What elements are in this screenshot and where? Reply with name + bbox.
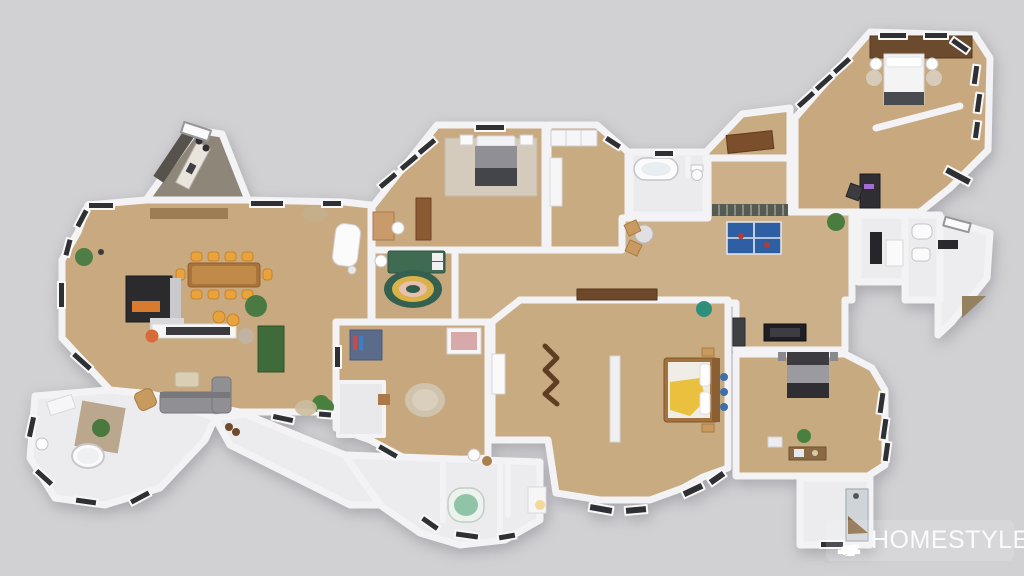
homestyler-shutter-icon [834, 526, 864, 556]
dining-chair [208, 252, 219, 261]
exercise-ball [696, 301, 712, 317]
vanity-stool [392, 222, 404, 234]
dining-chair [208, 290, 219, 299]
ball-lamp [375, 255, 387, 267]
window [588, 503, 613, 515]
window [318, 410, 333, 418]
paddle [764, 242, 770, 248]
teen-bed-pillow [432, 262, 443, 270]
sofa-back [160, 392, 230, 398]
dresser [492, 354, 505, 394]
area-rug [295, 400, 317, 416]
fireplace-panel [170, 278, 181, 320]
treadmill-deck [770, 328, 800, 337]
piano-bench [348, 266, 356, 274]
headboard [712, 358, 720, 422]
bench-items [812, 450, 818, 456]
nightstand [520, 135, 533, 145]
computer-desk [860, 174, 880, 208]
sideboard [577, 289, 657, 300]
ball-lamp [870, 58, 882, 70]
dining-chair [191, 290, 202, 299]
nightstand [702, 348, 714, 356]
monitor [864, 184, 874, 189]
tall-plant [75, 248, 93, 266]
window [971, 65, 981, 86]
tub-basin [77, 448, 99, 464]
grand-piano [332, 223, 362, 268]
ceiling-light [302, 206, 328, 222]
fluffy-rug-center [412, 389, 438, 411]
ball-lamp [926, 58, 938, 70]
round-rug [866, 70, 882, 86]
window [654, 150, 674, 157]
bed [787, 365, 829, 383]
homestyler-watermark: HOMESTYLER [826, 520, 1014, 561]
kids-chair [378, 394, 390, 405]
ladder-shelf [416, 198, 431, 240]
floorplan-svg [0, 0, 1024, 576]
bed-foot [787, 383, 829, 398]
toilet [36, 438, 48, 450]
window [625, 505, 648, 515]
bar-stool [213, 311, 225, 323]
pouf [146, 330, 159, 343]
side-table [778, 352, 786, 361]
wall-plant [827, 213, 845, 231]
wardrobe [551, 130, 597, 146]
bush-plant [245, 295, 267, 317]
bed [475, 146, 517, 168]
wall-plate [720, 403, 728, 411]
toilet [692, 170, 703, 181]
sink [912, 248, 930, 261]
bed-fold [884, 92, 924, 105]
staircase [712, 204, 788, 216]
bed-pillow [700, 392, 710, 414]
window [924, 32, 948, 39]
bench-items [794, 449, 804, 457]
window [88, 202, 114, 209]
window [322, 200, 342, 207]
floorplan-render: HOMESTYLER [0, 0, 1024, 576]
kitchen-appliance [203, 145, 210, 152]
round-rug-center [406, 285, 420, 293]
paddle [738, 233, 744, 239]
window [475, 124, 505, 131]
bed-pillows [477, 136, 515, 146]
shower-head [853, 493, 859, 499]
bed-pillows [886, 57, 922, 67]
dining-chair [242, 252, 253, 261]
potted-plant [92, 419, 110, 437]
dining-chair [263, 269, 272, 280]
planter-box [258, 326, 284, 372]
basket [482, 456, 492, 466]
fireplace-tv-unit [126, 276, 172, 322]
dining-chair [225, 290, 236, 299]
doormat [150, 208, 228, 219]
window [334, 346, 341, 368]
corner-rug [962, 296, 986, 318]
dining-chair [191, 252, 202, 261]
kids-closet [338, 382, 384, 436]
green-bathtub-basin [454, 494, 478, 516]
toilet [468, 449, 480, 461]
round-rug [926, 70, 942, 86]
crib-mattress [451, 332, 477, 350]
wc-room-c-floor [938, 218, 990, 335]
window [974, 93, 984, 114]
ceiling-light [238, 328, 254, 344]
toilet [912, 224, 932, 239]
fireplace-fire [132, 301, 160, 312]
teen-bed-pillow [432, 253, 443, 261]
vanity-desk [373, 212, 394, 240]
wall-plate [720, 373, 728, 381]
window [882, 442, 892, 463]
room-divider [610, 356, 620, 442]
toy [353, 336, 357, 350]
window [879, 32, 907, 39]
firewood-logs [232, 428, 240, 436]
nightstand [460, 135, 473, 145]
toy [359, 336, 363, 350]
window [58, 282, 65, 308]
coffee-table [175, 372, 199, 387]
wall-plate [720, 388, 728, 396]
side-table [768, 437, 782, 447]
closet-counter [550, 158, 562, 206]
bathroom-vanity [870, 232, 882, 264]
window [972, 121, 981, 140]
bar-counter-top [166, 327, 230, 335]
warm-light [535, 500, 545, 510]
side-table [830, 352, 838, 361]
exercise-bike [733, 318, 745, 346]
bar-stool [227, 314, 239, 326]
bed-headboard [787, 352, 829, 365]
firewood-logs [225, 423, 233, 431]
dining-table-top [192, 266, 256, 284]
shelf [938, 240, 958, 249]
dining-chair [225, 252, 236, 261]
watermark-brand-text: HOMESTYLER [871, 528, 1024, 553]
nightstand [702, 424, 714, 432]
bed-blanket [475, 168, 517, 186]
bathtub-basin [641, 162, 671, 176]
potted-plant [797, 429, 811, 443]
bath-cabinet [528, 487, 546, 513]
window [250, 200, 284, 207]
wall-sconce [98, 249, 104, 255]
door [886, 240, 903, 266]
bed-pillow [700, 364, 710, 386]
